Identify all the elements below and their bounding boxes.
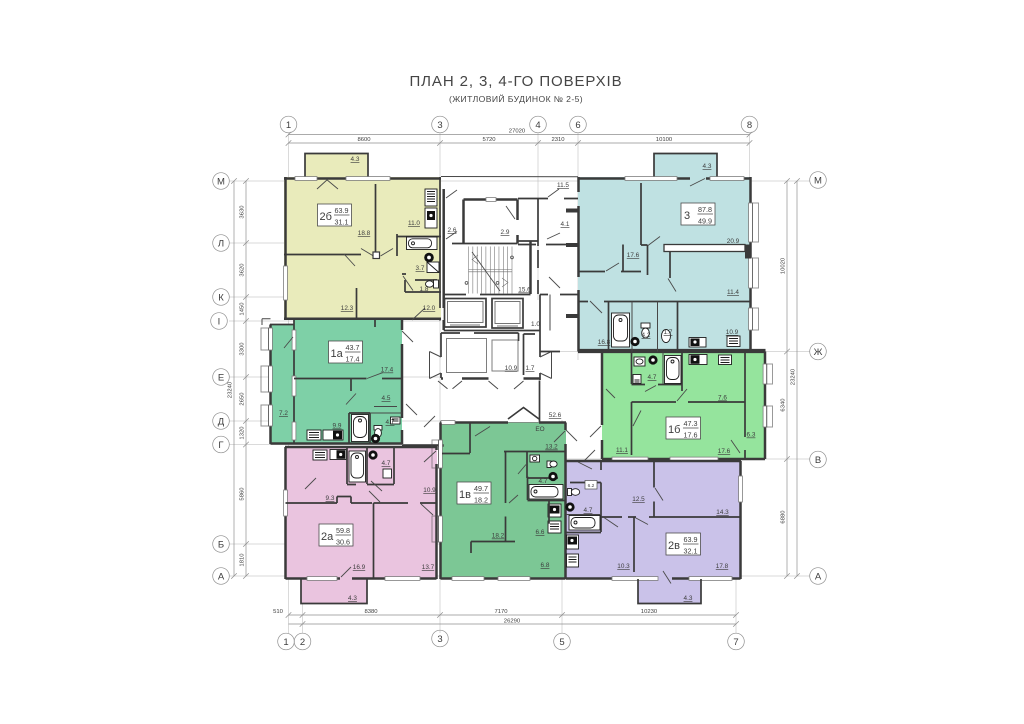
- svg-text:1: 1: [286, 120, 291, 131]
- svg-text:32.1: 32.1: [684, 547, 698, 556]
- svg-text:4: 4: [535, 120, 540, 131]
- svg-text:К: К: [218, 292, 224, 303]
- svg-text:А: А: [218, 571, 225, 582]
- svg-text:6.3: 6.3: [747, 432, 756, 439]
- svg-text:17.4: 17.4: [346, 355, 360, 364]
- svg-text:12.0: 12.0: [423, 305, 436, 312]
- svg-text:11.1: 11.1: [616, 447, 628, 454]
- svg-text:ЕО: ЕО: [535, 426, 544, 433]
- svg-text:1320: 1320: [240, 426, 246, 440]
- svg-text:17.4: 17.4: [381, 367, 394, 374]
- svg-text:10.3: 10.3: [617, 563, 630, 570]
- svg-text:10.9: 10.9: [505, 365, 518, 372]
- svg-text:5: 5: [559, 637, 564, 648]
- svg-text:ПЛАН 2, 3, 4-ГО ПОВЕРХІВ: ПЛАН 2, 3, 4-ГО ПОВЕРХІВ: [409, 73, 622, 90]
- svg-text:2а: 2а: [321, 531, 334, 543]
- svg-text:4.3: 4.3: [703, 163, 712, 170]
- svg-text:4.3: 4.3: [684, 595, 693, 602]
- svg-text:49.7: 49.7: [474, 484, 488, 493]
- svg-text:1б: 1б: [668, 424, 680, 436]
- svg-text:1.7: 1.7: [526, 365, 535, 372]
- svg-text:8380: 8380: [364, 609, 378, 615]
- svg-text:7.2: 7.2: [279, 410, 288, 417]
- svg-text:10230: 10230: [641, 609, 658, 615]
- svg-text:2.9: 2.9: [501, 229, 510, 236]
- svg-text:47.3: 47.3: [684, 419, 698, 428]
- svg-text:12.5: 12.5: [632, 496, 645, 503]
- svg-text:2650: 2650: [240, 392, 246, 406]
- svg-text:8: 8: [747, 120, 752, 131]
- svg-text:6: 6: [575, 120, 580, 131]
- svg-text:3630: 3630: [240, 205, 246, 219]
- svg-text:7.6: 7.6: [718, 395, 727, 402]
- svg-text:27020: 27020: [509, 129, 526, 135]
- svg-text:4.3: 4.3: [348, 595, 357, 602]
- svg-text:23240: 23240: [791, 368, 797, 385]
- svg-text:6880: 6880: [781, 510, 787, 524]
- svg-text:17.6: 17.6: [627, 252, 640, 259]
- svg-text:18.8: 18.8: [358, 230, 371, 237]
- svg-text:7: 7: [733, 637, 738, 648]
- svg-text:2310: 2310: [551, 137, 565, 143]
- svg-text:3620: 3620: [240, 263, 246, 277]
- svg-text:Д: Д: [218, 416, 225, 427]
- svg-text:59.8: 59.8: [336, 526, 350, 535]
- svg-text:Е: Е: [218, 372, 224, 383]
- svg-text:4.7: 4.7: [386, 419, 395, 426]
- svg-text:1450: 1450: [240, 302, 246, 316]
- svg-text:6340: 6340: [781, 398, 787, 412]
- svg-text:4.7: 4.7: [539, 478, 548, 485]
- svg-text:9.9: 9.9: [333, 423, 342, 430]
- svg-text:11.5: 11.5: [557, 182, 569, 189]
- svg-text:14.3: 14.3: [716, 509, 729, 516]
- svg-text:9.3: 9.3: [326, 495, 335, 502]
- svg-text:1в: 1в: [459, 489, 471, 501]
- svg-text:5860: 5860: [240, 487, 246, 501]
- svg-text:20.9: 20.9: [727, 238, 740, 245]
- svg-text:17.6: 17.6: [684, 431, 698, 440]
- svg-text:30.6: 30.6: [336, 538, 350, 547]
- svg-text:17.6: 17.6: [718, 448, 731, 455]
- svg-text:23240: 23240: [228, 381, 234, 398]
- svg-text:4.2: 4.2: [642, 332, 651, 339]
- svg-text:Б: Б: [218, 539, 224, 550]
- svg-text:6.6: 6.6: [536, 529, 545, 536]
- svg-text:І: І: [218, 316, 221, 327]
- svg-text:10020: 10020: [781, 257, 787, 274]
- svg-text:2в: 2в: [668, 540, 680, 552]
- svg-text:2б: 2б: [320, 211, 332, 223]
- svg-text:16.9: 16.9: [353, 564, 366, 571]
- svg-text:1а: 1а: [331, 348, 344, 360]
- svg-text:3: 3: [437, 634, 442, 645]
- svg-text:1.8: 1.8: [420, 286, 429, 293]
- svg-text:8600: 8600: [357, 137, 371, 143]
- svg-text:4.5: 4.5: [382, 395, 391, 402]
- svg-text:63.9: 63.9: [335, 206, 349, 215]
- svg-text:10.9: 10.9: [726, 329, 739, 336]
- svg-text:2: 2: [300, 637, 305, 648]
- svg-text:4.7: 4.7: [382, 460, 391, 467]
- svg-text:Л: Л: [218, 238, 224, 249]
- svg-text:11.0: 11.0: [408, 220, 420, 227]
- svg-text:1.0: 1.0: [531, 321, 540, 328]
- svg-text:11.4: 11.4: [727, 289, 739, 296]
- svg-text:1: 1: [283, 637, 288, 648]
- svg-text:5720: 5720: [482, 137, 496, 143]
- svg-text:49.9: 49.9: [698, 217, 712, 226]
- svg-text:4.7: 4.7: [584, 507, 593, 514]
- svg-text:87.8: 87.8: [698, 205, 712, 214]
- svg-text:31.1: 31.1: [335, 218, 349, 227]
- svg-text:18.2: 18.2: [492, 533, 505, 540]
- svg-text:43.7: 43.7: [346, 343, 360, 352]
- svg-text:18.2: 18.2: [474, 496, 488, 505]
- svg-text:Ж: Ж: [814, 347, 823, 358]
- svg-text:4.1: 4.1: [561, 221, 570, 228]
- svg-text:12.3: 12.3: [341, 305, 354, 312]
- svg-text:52.6: 52.6: [549, 412, 562, 419]
- svg-text:1810: 1810: [240, 553, 246, 567]
- svg-text:А: А: [815, 571, 822, 582]
- svg-text:3: 3: [684, 210, 690, 222]
- svg-text:6.8: 6.8: [541, 562, 550, 569]
- svg-text:3: 3: [437, 120, 442, 131]
- svg-text:4.3: 4.3: [351, 156, 360, 163]
- svg-text:10.9: 10.9: [423, 487, 436, 494]
- svg-text:(ЖИТЛОВИЙ БУДИНОК № 2-5): (ЖИТЛОВИЙ БУДИНОК № 2-5): [449, 93, 583, 104]
- svg-text:63.9: 63.9: [684, 535, 698, 544]
- svg-text:Г: Г: [218, 440, 223, 451]
- svg-text:510: 510: [273, 609, 284, 615]
- svg-text:1.7: 1.7: [664, 329, 673, 336]
- svg-text:6.2: 6.2: [588, 483, 595, 489]
- svg-text:13.7: 13.7: [422, 564, 435, 571]
- svg-text:26290: 26290: [504, 619, 521, 625]
- svg-text:10100: 10100: [656, 137, 673, 143]
- svg-text:4.7: 4.7: [648, 374, 657, 381]
- svg-text:7170: 7170: [494, 609, 508, 615]
- svg-text:М: М: [217, 176, 225, 187]
- svg-text:3300: 3300: [240, 342, 246, 356]
- svg-text:13.2: 13.2: [545, 444, 558, 451]
- svg-text:15.6: 15.6: [518, 287, 531, 294]
- svg-text:В: В: [815, 455, 821, 466]
- svg-text:17.8: 17.8: [716, 563, 729, 570]
- svg-text:М: М: [814, 175, 822, 186]
- svg-text:3.7: 3.7: [416, 265, 425, 272]
- svg-text:16.8: 16.8: [598, 339, 611, 346]
